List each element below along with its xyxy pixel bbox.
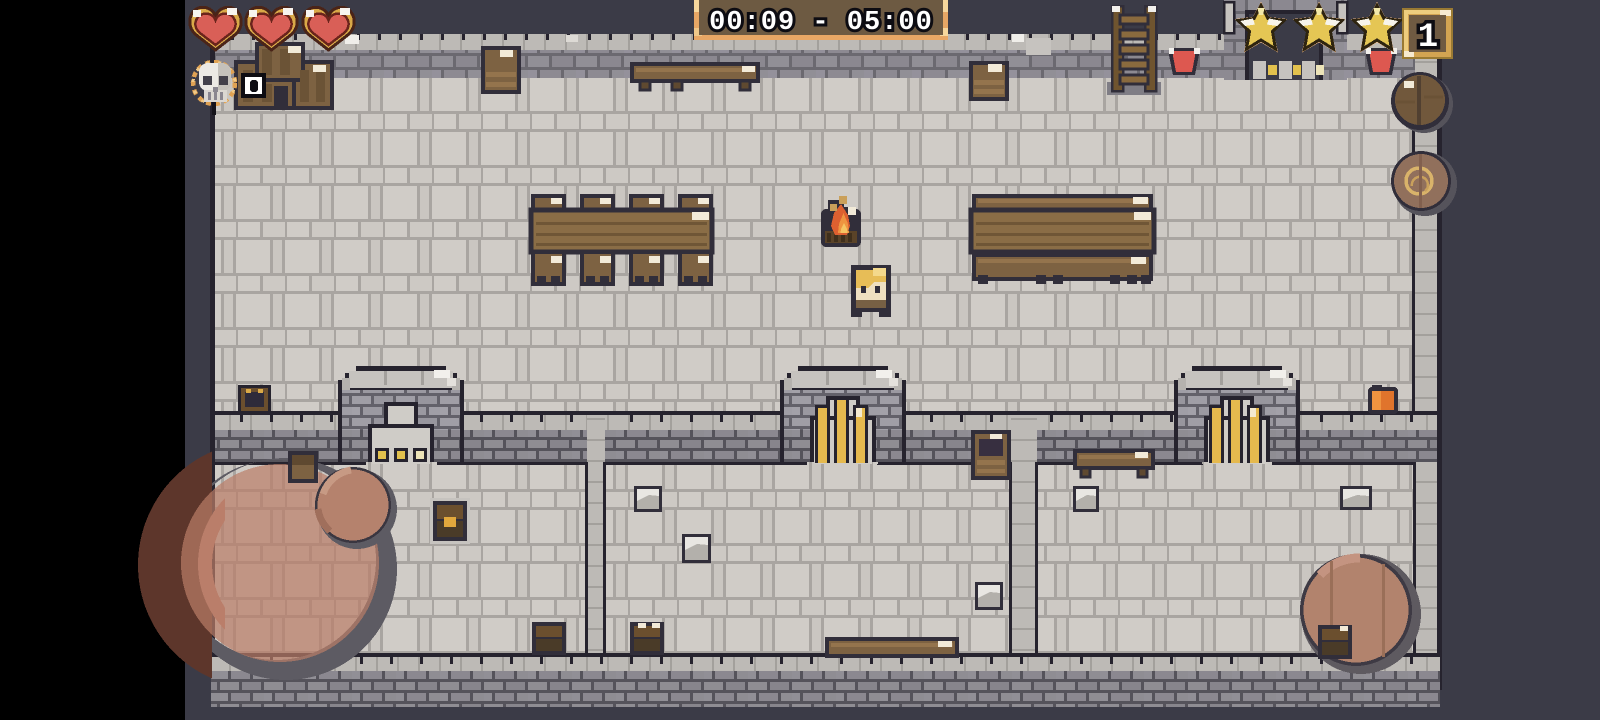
svg-text:1: 1 xyxy=(1418,19,1438,57)
svg-text:00:09 - 05:00: 00:09 - 05:00 xyxy=(709,8,933,38)
